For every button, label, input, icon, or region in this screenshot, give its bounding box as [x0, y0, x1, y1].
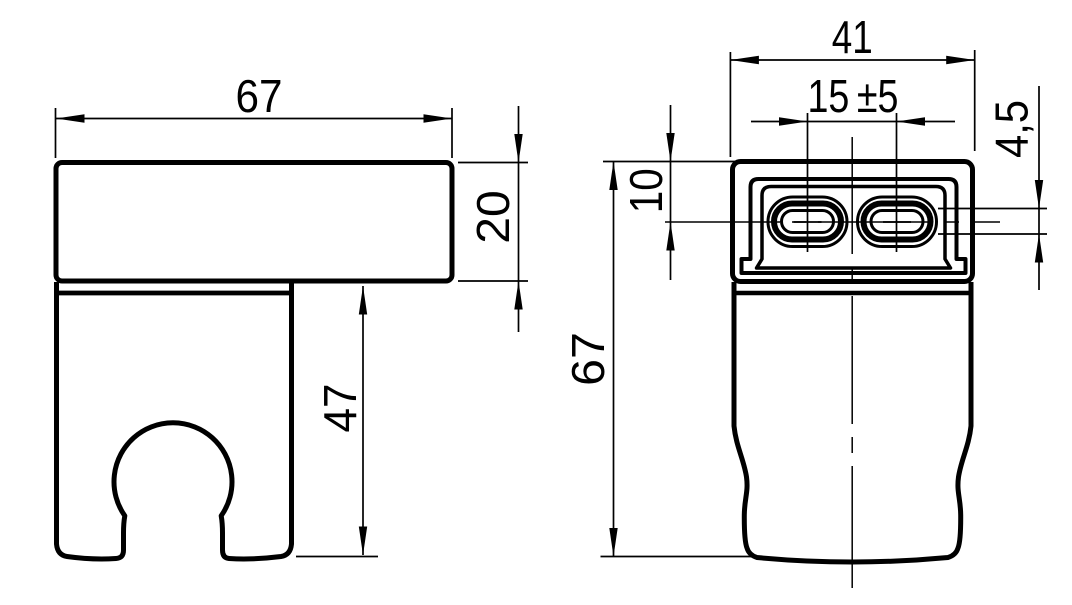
svg-text:41: 41 [832, 11, 873, 63]
svg-text:10: 10 [620, 168, 672, 213]
svg-text:20: 20 [467, 190, 519, 244]
svg-text:67: 67 [236, 70, 283, 122]
svg-text:15 ±5: 15 ±5 [808, 70, 899, 122]
svg-text:4,5: 4,5 [986, 100, 1038, 158]
svg-text:47: 47 [314, 384, 366, 433]
svg-text:67: 67 [562, 332, 614, 386]
